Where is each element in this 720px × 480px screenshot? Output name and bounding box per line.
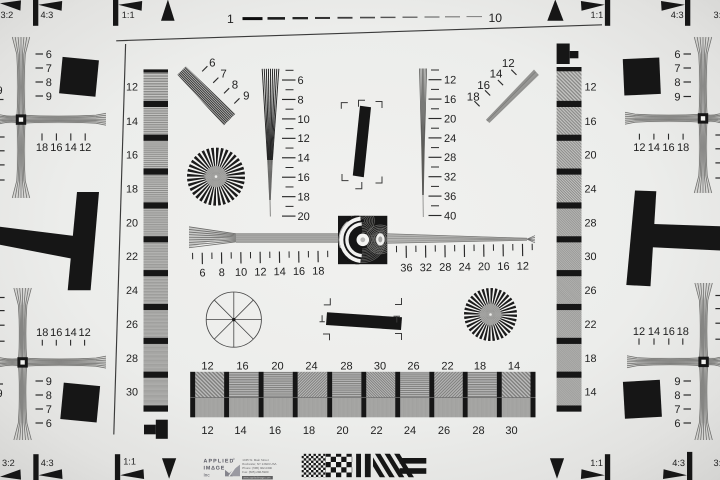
svg-text:20: 20 xyxy=(444,113,456,125)
svg-text:www.appliedimage.com: www.appliedimage.com xyxy=(243,477,270,480)
svg-text:6: 6 xyxy=(46,49,52,61)
svg-text:8: 8 xyxy=(674,390,680,402)
svg-text:18: 18 xyxy=(36,327,48,339)
svg-text:8: 8 xyxy=(219,267,225,279)
svg-text:16: 16 xyxy=(293,266,305,278)
svg-text:28: 28 xyxy=(444,152,456,164)
svg-text:6: 6 xyxy=(674,49,680,61)
svg-text:24: 24 xyxy=(585,184,597,196)
svg-text:30: 30 xyxy=(374,360,386,372)
svg-text:4:3: 4:3 xyxy=(41,10,54,20)
svg-text:9: 9 xyxy=(0,388,3,400)
svg-text:24: 24 xyxy=(126,285,138,297)
svg-text:APPLIED: APPLIED xyxy=(204,458,235,464)
svg-text:22: 22 xyxy=(126,251,138,263)
svg-text:14: 14 xyxy=(274,266,286,278)
svg-text:16: 16 xyxy=(444,94,456,106)
svg-text:12: 12 xyxy=(201,360,213,372)
svg-text:4:3: 4:3 xyxy=(41,458,54,468)
svg-text:6: 6 xyxy=(298,75,304,87)
svg-text:36: 36 xyxy=(444,191,456,203)
svg-text:28: 28 xyxy=(472,425,484,437)
svg-text:1:1: 1:1 xyxy=(122,10,135,20)
svg-text:10: 10 xyxy=(489,11,503,25)
svg-text:Inc: Inc xyxy=(204,472,211,477)
svg-text:26: 26 xyxy=(585,285,597,297)
svg-text:8: 8 xyxy=(46,390,52,402)
svg-text:7: 7 xyxy=(220,69,226,81)
svg-text:26: 26 xyxy=(407,360,419,372)
svg-text:28: 28 xyxy=(439,262,451,274)
svg-text:16: 16 xyxy=(477,80,490,92)
svg-text:IMΔGE: IMΔGE xyxy=(204,466,226,472)
svg-text:12: 12 xyxy=(633,142,645,154)
svg-text:28: 28 xyxy=(126,353,138,365)
svg-text:14: 14 xyxy=(65,142,77,154)
svg-text:30: 30 xyxy=(505,425,517,437)
svg-text:14: 14 xyxy=(490,69,503,81)
svg-text:30: 30 xyxy=(585,251,597,263)
svg-text:3:2: 3:2 xyxy=(2,458,15,468)
svg-text:28: 28 xyxy=(340,360,352,372)
svg-text:9: 9 xyxy=(46,91,52,103)
svg-text:26: 26 xyxy=(126,319,138,331)
svg-text:8: 8 xyxy=(674,77,680,89)
svg-text:8: 8 xyxy=(46,77,52,89)
svg-text:18: 18 xyxy=(298,192,310,204)
svg-text:26: 26 xyxy=(438,425,450,437)
svg-text:16: 16 xyxy=(50,142,62,154)
svg-text:40: 40 xyxy=(444,210,456,222)
svg-text:20: 20 xyxy=(478,261,490,273)
svg-text:16: 16 xyxy=(585,116,597,128)
svg-text:1:1: 1:1 xyxy=(591,10,604,20)
svg-text:9: 9 xyxy=(243,90,249,102)
svg-text:12: 12 xyxy=(502,58,515,70)
svg-text:14: 14 xyxy=(585,387,597,399)
svg-text:14: 14 xyxy=(648,142,660,154)
svg-text:18: 18 xyxy=(312,265,324,277)
svg-text:9: 9 xyxy=(674,91,680,103)
svg-text:4:3: 4:3 xyxy=(672,458,685,468)
svg-text:24: 24 xyxy=(404,425,416,437)
svg-text:1: 1 xyxy=(227,12,234,26)
svg-text:16: 16 xyxy=(269,425,281,437)
svg-text:16: 16 xyxy=(298,172,310,184)
svg-text:12: 12 xyxy=(517,260,529,272)
svg-text:18: 18 xyxy=(474,360,486,372)
svg-text:6: 6 xyxy=(46,418,52,430)
svg-text:20: 20 xyxy=(298,211,310,223)
svg-text:7: 7 xyxy=(46,404,52,416)
svg-text:12: 12 xyxy=(298,133,310,145)
svg-text:7: 7 xyxy=(674,404,680,416)
svg-text:18: 18 xyxy=(467,92,480,104)
svg-text:3:2: 3:2 xyxy=(714,458,720,468)
svg-text:Fax: (585) 288-5989: Fax: (585) 288-5989 xyxy=(242,470,269,474)
svg-text:1:1: 1:1 xyxy=(590,458,603,468)
svg-text:18: 18 xyxy=(677,142,689,154)
svg-text:12: 12 xyxy=(79,142,91,154)
svg-text:30: 30 xyxy=(126,387,138,399)
svg-text:32: 32 xyxy=(420,262,432,274)
svg-text:10: 10 xyxy=(298,114,310,126)
svg-text:36: 36 xyxy=(400,262,412,274)
svg-text:14: 14 xyxy=(298,153,310,165)
svg-text:9: 9 xyxy=(674,376,680,388)
svg-text:22: 22 xyxy=(441,360,453,372)
svg-text:1:1: 1:1 xyxy=(123,457,136,467)
svg-text:18: 18 xyxy=(303,425,315,437)
svg-text:6: 6 xyxy=(674,418,680,430)
svg-text:8: 8 xyxy=(232,80,238,92)
svg-text:9: 9 xyxy=(0,85,3,97)
svg-text:28: 28 xyxy=(585,217,597,229)
svg-text:3:2: 3:2 xyxy=(714,10,720,20)
svg-text:14: 14 xyxy=(508,360,520,372)
svg-text:20: 20 xyxy=(336,425,348,437)
svg-text:16: 16 xyxy=(50,327,62,339)
svg-text:16: 16 xyxy=(236,360,248,372)
svg-text:6: 6 xyxy=(199,267,205,279)
svg-text:12: 12 xyxy=(444,75,456,87)
svg-text:24: 24 xyxy=(444,133,456,145)
svg-text:20: 20 xyxy=(271,360,283,372)
svg-text:10: 10 xyxy=(235,267,247,279)
svg-text:9: 9 xyxy=(46,376,52,388)
svg-text:24: 24 xyxy=(458,261,470,273)
svg-text:22: 22 xyxy=(585,319,597,331)
svg-text:14: 14 xyxy=(648,326,660,338)
svg-text:12: 12 xyxy=(126,82,138,94)
svg-text:16: 16 xyxy=(126,150,138,162)
svg-text:24: 24 xyxy=(305,360,317,372)
svg-text:20: 20 xyxy=(126,217,138,229)
svg-text:16: 16 xyxy=(662,142,674,154)
svg-text:18: 18 xyxy=(585,353,597,365)
svg-text:18: 18 xyxy=(126,184,138,196)
svg-text:20: 20 xyxy=(585,150,597,162)
svg-text:14: 14 xyxy=(126,116,138,128)
svg-text:18: 18 xyxy=(677,326,689,338)
svg-text:12: 12 xyxy=(78,327,90,339)
svg-text:12: 12 xyxy=(201,425,213,437)
svg-text:8: 8 xyxy=(298,94,304,106)
svg-text:18: 18 xyxy=(36,142,48,154)
svg-text:7: 7 xyxy=(46,63,52,75)
svg-text:12: 12 xyxy=(254,266,266,278)
svg-text:6: 6 xyxy=(209,58,215,70)
svg-text:12: 12 xyxy=(585,82,597,94)
svg-text:7: 7 xyxy=(674,63,680,75)
svg-text:16: 16 xyxy=(663,326,675,338)
svg-text:32: 32 xyxy=(444,172,456,184)
svg-text:16: 16 xyxy=(497,261,509,273)
svg-text:14: 14 xyxy=(234,425,246,437)
svg-text:4:3: 4:3 xyxy=(671,10,684,20)
svg-text:14: 14 xyxy=(64,327,76,339)
svg-text:22: 22 xyxy=(370,425,382,437)
svg-text:12: 12 xyxy=(633,326,645,338)
svg-text:3:2: 3:2 xyxy=(1,10,14,20)
